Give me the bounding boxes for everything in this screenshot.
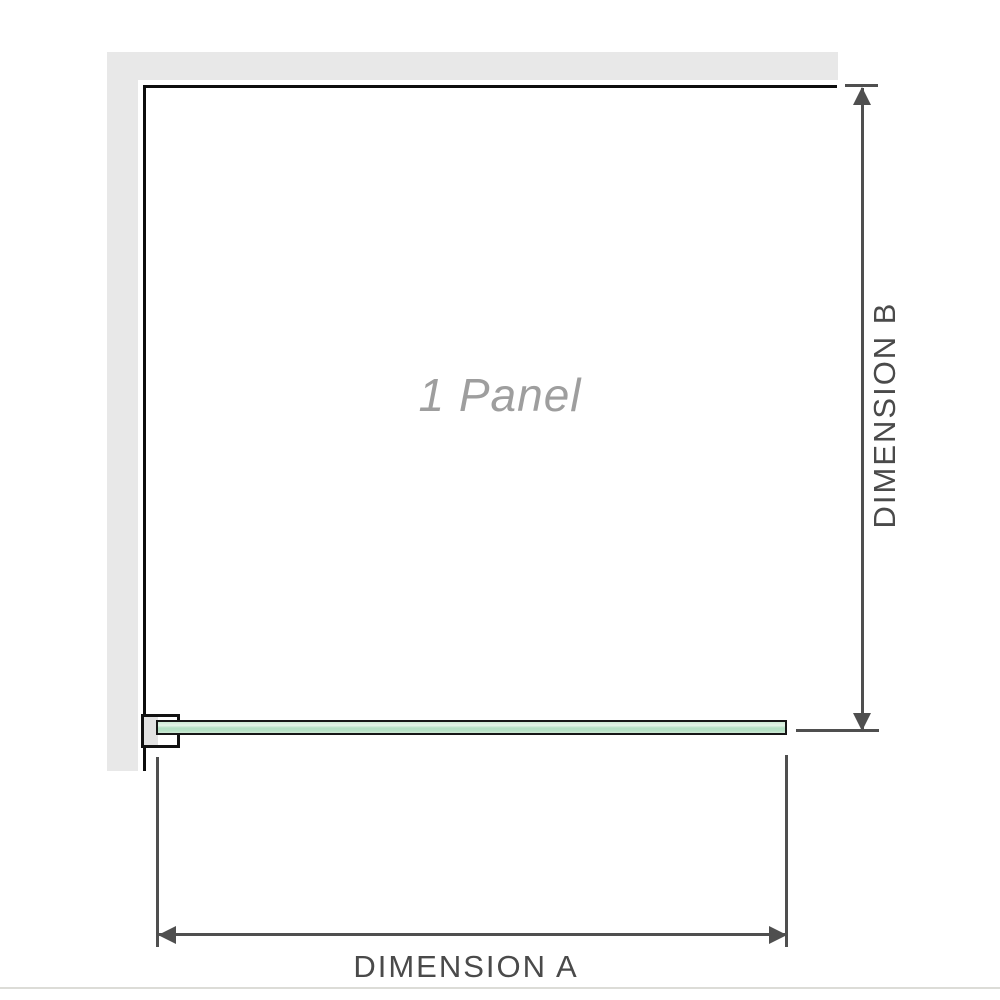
arrow-up-icon (853, 87, 871, 105)
enclosure-top-edge (143, 85, 837, 88)
arrow-right-icon (769, 926, 787, 944)
dimension-a-right-extension-line (785, 755, 788, 947)
arrow-down-icon (853, 713, 871, 731)
enclosure-left-edge (143, 85, 146, 771)
wall-top (107, 52, 838, 80)
dimension-a-label: DIMENSION A (316, 949, 616, 985)
wall-left (107, 52, 138, 771)
dimension-b-line (861, 88, 864, 731)
bottom-divider (0, 987, 1000, 989)
dimension-a-left-extension-line (156, 757, 159, 947)
arrow-left-icon (158, 926, 176, 944)
glass-panel (156, 720, 787, 735)
panel-count-label: 1 Panel (350, 368, 650, 422)
dimension-b-label: DIMENSION B (867, 265, 903, 565)
shower-panel-dimension-diagram: 1 Panel DIMENSION B DIMENSION A (0, 0, 1000, 1000)
dimension-a-line (158, 933, 787, 936)
